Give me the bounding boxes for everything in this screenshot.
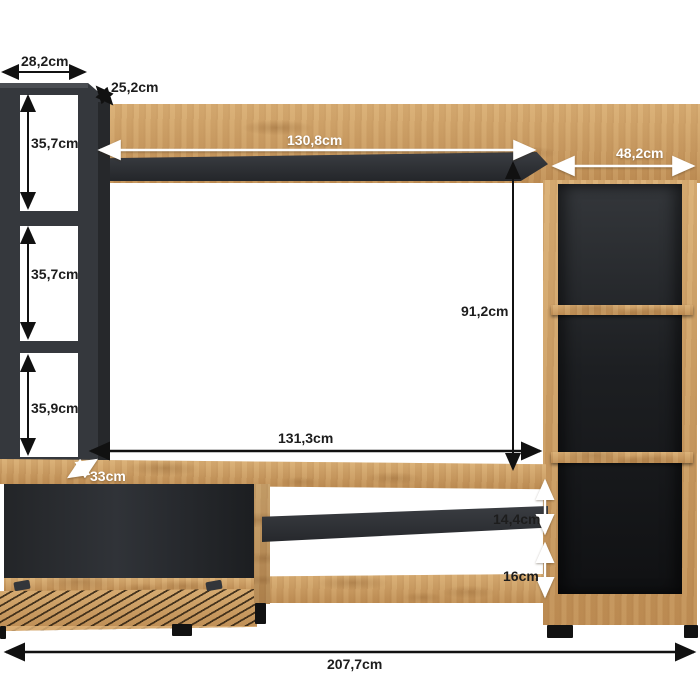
tv-stand-slatted-door <box>0 589 257 631</box>
tv-stand-foot-middle <box>255 603 266 624</box>
right-cabinet <box>543 180 697 625</box>
dim-label-niche-width: 131,3cm <box>278 430 333 447</box>
furniture-dimension-diagram: 28,2cm 25,2cm 35,7cm 35,7cm 35,9cm 130,8… <box>0 0 700 700</box>
dim-label-niche-height: 91,2cm <box>461 303 508 320</box>
dim-label-cubby-top: 35,7cm <box>31 135 78 152</box>
tv-stand-middle-divider <box>254 484 270 604</box>
dim-label-wall-shelf-width: 130,8cm <box>287 132 342 149</box>
right-cabinet-shelf-lower <box>551 452 693 463</box>
dim-label-cubby-bottom: 35,9cm <box>31 400 78 417</box>
dim-label-cubby-middle: 35,7cm <box>31 266 78 283</box>
dim-label-tv-stand-depth: 33cm <box>90 468 126 485</box>
right-cabinet-foot-right <box>684 625 698 638</box>
dim-label-left-unit-depth: 25,2cm <box>111 79 158 96</box>
left-unit-cubby-top <box>20 95 78 211</box>
right-cabinet-shelf-upper <box>551 305 693 315</box>
dim-label-gap-lower: 16cm <box>503 568 539 585</box>
right-cabinet-back-panel <box>558 184 682 594</box>
dim-label-right-cabinet-width: 48,2cm <box>616 145 663 162</box>
left-unit-top-edge <box>0 83 88 88</box>
dim-label-total-width: 207,7cm <box>327 656 382 673</box>
left-unit-cubby-middle <box>20 226 78 341</box>
tv-stand-foot-left-edge <box>0 626 6 639</box>
dim-label-left-unit-width: 28,2cm <box>21 53 68 70</box>
right-cabinet-foot-left <box>547 625 573 638</box>
dim-label-gap-upper: 14,4cm <box>493 511 540 528</box>
left-unit-side-panel <box>98 102 110 460</box>
tv-stand-left-compartment-back <box>4 484 254 580</box>
tv-stand-foot-left <box>172 624 192 636</box>
